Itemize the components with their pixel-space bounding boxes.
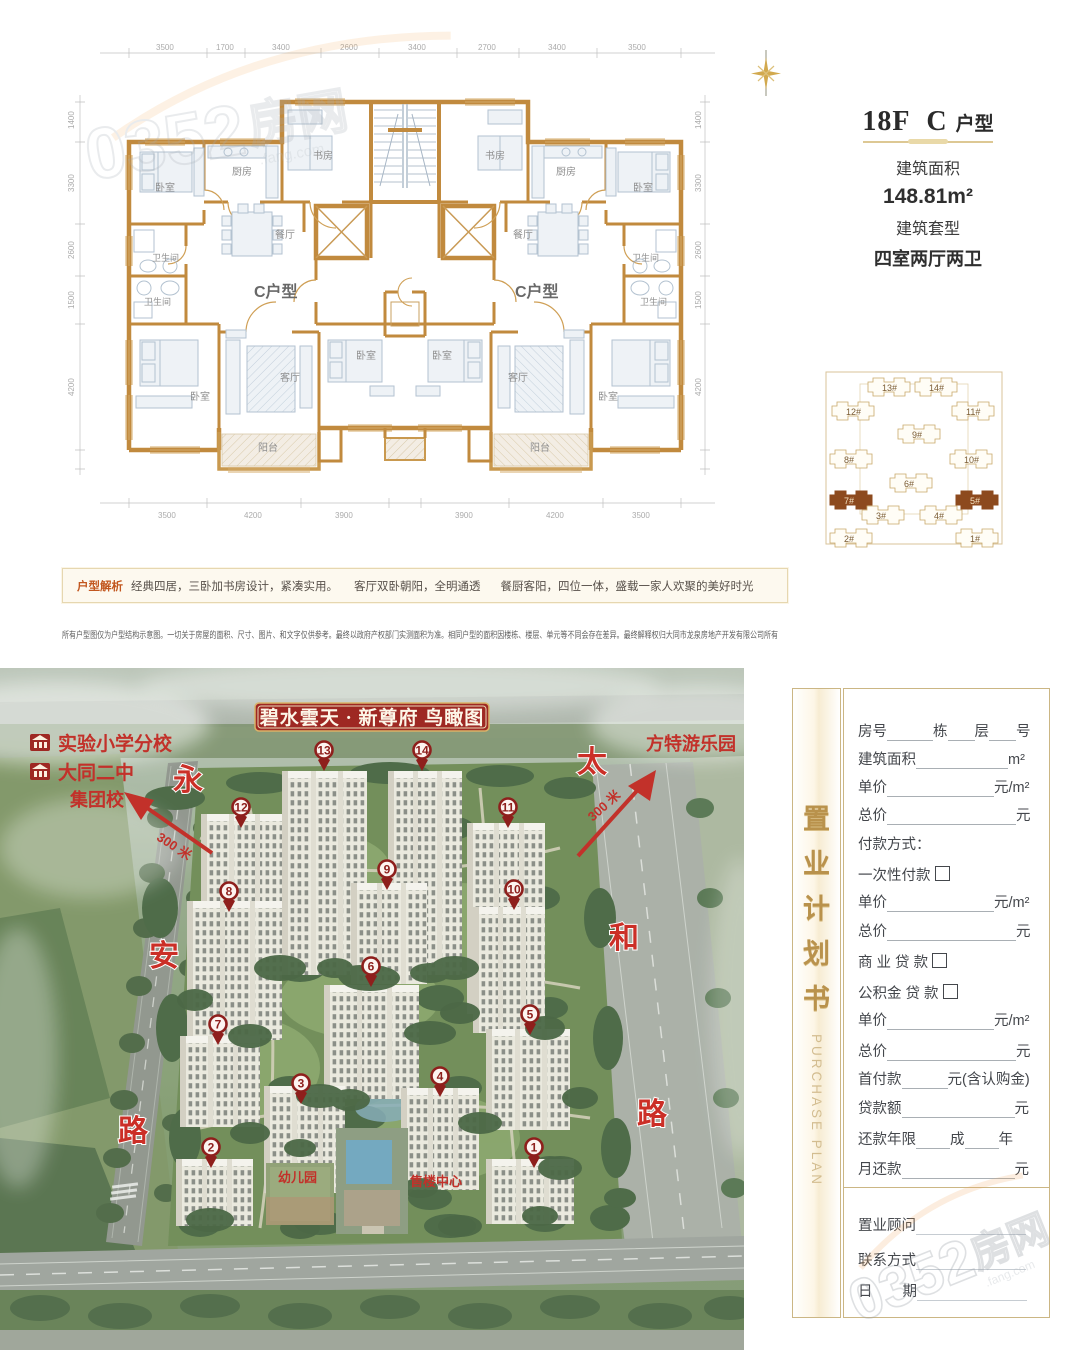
svg-text:卫生间: 卫生间: [152, 252, 179, 263]
svg-text:客厅: 客厅: [508, 371, 528, 384]
svg-text:1: 1: [531, 1141, 538, 1155]
svg-text:3500: 3500: [156, 43, 174, 52]
svg-text:3900: 3900: [455, 511, 473, 520]
svg-text:餐厅: 餐厅: [513, 228, 533, 241]
svg-text:8: 8: [226, 885, 233, 899]
svg-text:太: 太: [577, 746, 608, 779]
svg-text:4200: 4200: [244, 511, 262, 520]
svg-text:5#: 5#: [970, 496, 980, 506]
svg-text:13: 13: [317, 744, 331, 758]
svg-text:1400: 1400: [67, 111, 76, 129]
svg-text:厨房: 厨房: [232, 165, 252, 178]
svg-text:10#: 10#: [964, 455, 979, 465]
svg-text:3: 3: [298, 1077, 305, 1091]
svg-text:9#: 9#: [912, 430, 922, 440]
svg-text:3300: 3300: [67, 174, 76, 192]
svg-text:C户型: C户型: [254, 282, 298, 301]
svg-text:3400: 3400: [272, 43, 290, 52]
svg-text:5: 5: [527, 1008, 534, 1022]
svg-text:7: 7: [215, 1018, 222, 1032]
svg-text:卧室: 卧室: [356, 349, 376, 362]
svg-text:卫生间: 卫生间: [144, 296, 171, 307]
svg-text:卫生间: 卫生间: [632, 252, 659, 263]
svg-text:碧水雲天 · 新尊府 鸟瞰图: 碧水雲天 · 新尊府 鸟瞰图: [259, 706, 485, 729]
svg-text:路: 路: [637, 1098, 668, 1131]
svg-text:9: 9: [384, 863, 391, 877]
svg-text:大同二中: 大同二中: [58, 761, 134, 784]
svg-text:2600: 2600: [67, 241, 76, 259]
svg-text:11#: 11#: [966, 407, 980, 417]
svg-text:和: 和: [609, 922, 639, 955]
svg-text:餐厅: 餐厅: [275, 228, 295, 241]
svg-text:安: 安: [149, 940, 179, 973]
svg-text:3300: 3300: [694, 174, 703, 192]
svg-text:12#: 12#: [846, 407, 861, 417]
svg-text:1#: 1#: [970, 534, 980, 544]
svg-text:2600: 2600: [694, 241, 703, 259]
svg-text:4200: 4200: [546, 511, 564, 520]
svg-text:阳台: 阳台: [530, 441, 550, 454]
svg-text:3400: 3400: [548, 43, 566, 52]
svg-text:幼儿园: 幼儿园: [278, 1170, 317, 1185]
svg-text:卧室: 卧室: [155, 181, 175, 194]
svg-text:8#: 8#: [844, 455, 854, 465]
svg-text:卧室: 卧室: [190, 390, 210, 403]
svg-text:方特游乐园: 方特游乐园: [646, 733, 736, 754]
svg-text:6: 6: [368, 960, 375, 974]
svg-text:客厅: 客厅: [280, 371, 300, 384]
svg-text:1400: 1400: [694, 111, 703, 129]
svg-text:14: 14: [415, 744, 429, 758]
svg-text:3500: 3500: [158, 511, 176, 520]
svg-text:4200: 4200: [694, 378, 703, 396]
svg-text:4200: 4200: [67, 378, 76, 396]
svg-text:1500: 1500: [67, 291, 76, 309]
svg-text:2: 2: [208, 1141, 215, 1155]
svg-text:6#: 6#: [904, 479, 914, 489]
svg-text:永: 永: [173, 764, 203, 797]
svg-text:7#: 7#: [844, 496, 854, 506]
svg-text:13#: 13#: [882, 383, 897, 393]
svg-text:3500: 3500: [632, 511, 650, 520]
svg-text:1500: 1500: [694, 291, 703, 309]
svg-text:12: 12: [234, 801, 248, 815]
svg-text:3400: 3400: [408, 43, 426, 52]
svg-text:书房: 书房: [485, 149, 505, 162]
svg-text:集团校: 集团校: [69, 789, 125, 810]
svg-text:3900: 3900: [335, 511, 353, 520]
svg-text:卧室: 卧室: [598, 390, 618, 403]
svg-text:阳台: 阳台: [258, 441, 278, 454]
svg-text:卧室: 卧室: [432, 349, 452, 362]
svg-text:14#: 14#: [929, 383, 944, 393]
svg-text:厨房: 厨房: [556, 165, 576, 178]
svg-text:1700: 1700: [216, 43, 234, 52]
svg-text:2#: 2#: [844, 534, 854, 544]
svg-text:售楼中心: 售楼中心: [410, 1174, 462, 1189]
svg-text:卧室: 卧室: [633, 181, 653, 194]
svg-text:书房: 书房: [313, 149, 333, 162]
svg-text:C户型: C户型: [515, 282, 559, 301]
svg-text:2600: 2600: [340, 43, 358, 52]
svg-text:2700: 2700: [478, 43, 496, 52]
svg-text:卫生间: 卫生间: [640, 296, 667, 307]
svg-text:4#: 4#: [934, 511, 944, 521]
svg-text:11: 11: [502, 801, 515, 815]
svg-text:3#: 3#: [876, 511, 886, 521]
svg-text:4: 4: [437, 1070, 444, 1084]
svg-text:10: 10: [507, 883, 521, 897]
svg-text:路: 路: [118, 1115, 149, 1148]
svg-text:3500: 3500: [628, 43, 646, 52]
svg-text:实验小学分校: 实验小学分校: [58, 732, 173, 755]
